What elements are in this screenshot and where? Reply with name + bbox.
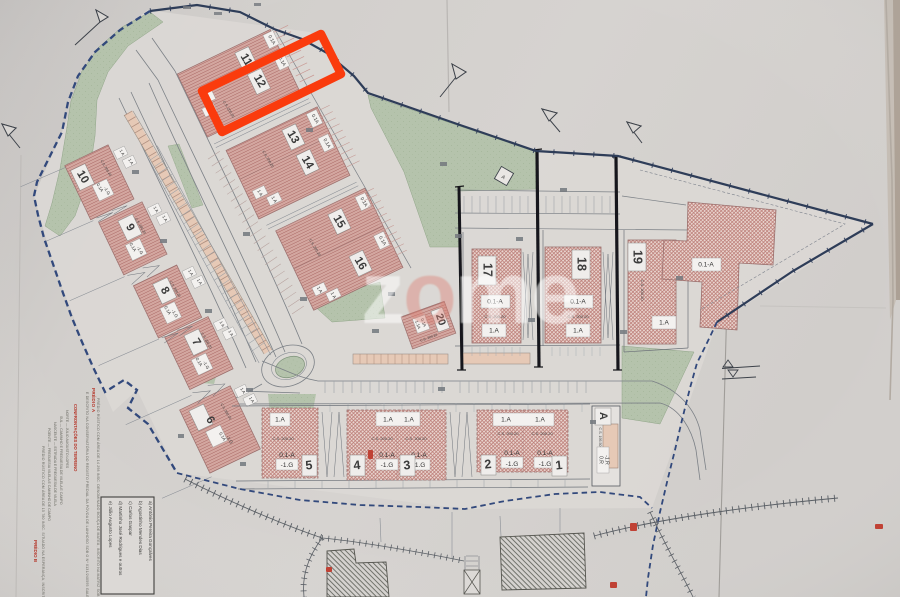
svg-text:E DESCRITO NA CONSERVATÓRIA DO: E DESCRITO NA CONSERVATÓRIA DO REGISTO P… — [85, 392, 90, 597]
svg-text:C.S. 200.20: C.S. 200.20 — [272, 436, 294, 441]
svg-text:1.A: 1.A — [659, 320, 669, 327]
svg-text:0.1-A: 0.1-A — [698, 262, 714, 269]
svg-text:C.S. 200.20: C.S. 200.20 — [640, 279, 645, 301]
svg-text:C.S. 195.50: C.S. 195.50 — [598, 428, 602, 447]
svg-text:-1.G: -1.G — [506, 461, 519, 468]
svg-text:PRÉDIO B: PRÉDIO B — [33, 540, 40, 563]
svg-text:C.S. 200.20: C.S. 200.20 — [405, 436, 427, 441]
svg-text:NASCENTE — ESTRADA E FREGUE: NASCENTE — ESTRADA E FREGUESIA DE VILELA — [53, 422, 57, 506]
svg-text:a) António Pereira Gonçalves: a) António Pereira Gonçalves — [148, 501, 153, 561]
svg-text:-1.R: -1.R — [604, 455, 610, 465]
svg-text:0.1-A: 0.1-A — [379, 452, 395, 459]
svg-text:PRÉDIO RÚSTICO COM ÁREA DE 15: PRÉDIO RÚSTICO COM ÁREA DE 15 780 INSC. … — [41, 446, 46, 597]
svg-text:d) Martinho José Rodrigues e o: d) Martinho José Rodrigues e outros — [118, 501, 123, 576]
svg-text:NORTE — JÚLIO AUGUSTO LOPES: NORTE — JÚLIO AUGUSTO LOPES — [65, 410, 69, 469]
svg-text:1.A: 1.A — [383, 417, 393, 424]
svg-text:C.S. 200.20: C.S. 200.20 — [371, 436, 393, 441]
svg-text:-1.G: -1.G — [281, 462, 294, 469]
svg-text:1.A: 1.A — [275, 417, 285, 424]
svg-text:1.A: 1.A — [404, 417, 414, 424]
svg-text:0.1-A: 0.1-A — [504, 450, 520, 457]
svg-text:POENTE — FREGUESIA VILELA E: POENTE — FREGUESIA VILELA E CAMINHO DE C… — [47, 428, 51, 521]
svg-text:-1.G: -1.G — [381, 462, 394, 469]
svg-text:0.R: 0.R — [598, 456, 604, 464]
svg-text:1.A: 1.A — [535, 417, 545, 424]
svg-text:1.A: 1.A — [501, 417, 511, 424]
svg-text:c) Carlos Gaspar: c) Carlos Gaspar — [128, 501, 133, 536]
svg-text:zome: zome — [361, 243, 578, 342]
svg-text:0.1-A: 0.1-A — [537, 450, 553, 457]
svg-text:-1.G: -1.G — [539, 461, 552, 468]
svg-text:b) Agostinho Mendes Dias: b) Agostinho Mendes Dias — [138, 501, 143, 555]
svg-text:PRÉDIO RÚSTICO COM ÁREA DE 14: PRÉDIO RÚSTICO COM ÁREA DE 14 298 INSC. … — [96, 398, 101, 597]
svg-text:0.1-A: 0.1-A — [279, 452, 295, 459]
svg-text:C.S. 200.20: C.S. 200.20 — [497, 431, 519, 436]
svg-text:A: A — [597, 412, 609, 420]
svg-text:SUL — CAMINHO E FREGUESIA D: SUL — CAMINHO E FREGUESIA DE VILELA E CA… — [59, 416, 63, 505]
svg-text:19: 19 — [631, 250, 645, 264]
svg-text:e) Júlio Augusto Lopes: e) Júlio Augusto Lopes — [108, 501, 113, 548]
svg-text:CONFRONTAÇÕES DO TERRENO: CONFRONTAÇÕES DO TERRENO — [73, 404, 78, 472]
svg-text:C.S. 200.20: C.S. 200.20 — [531, 431, 553, 436]
